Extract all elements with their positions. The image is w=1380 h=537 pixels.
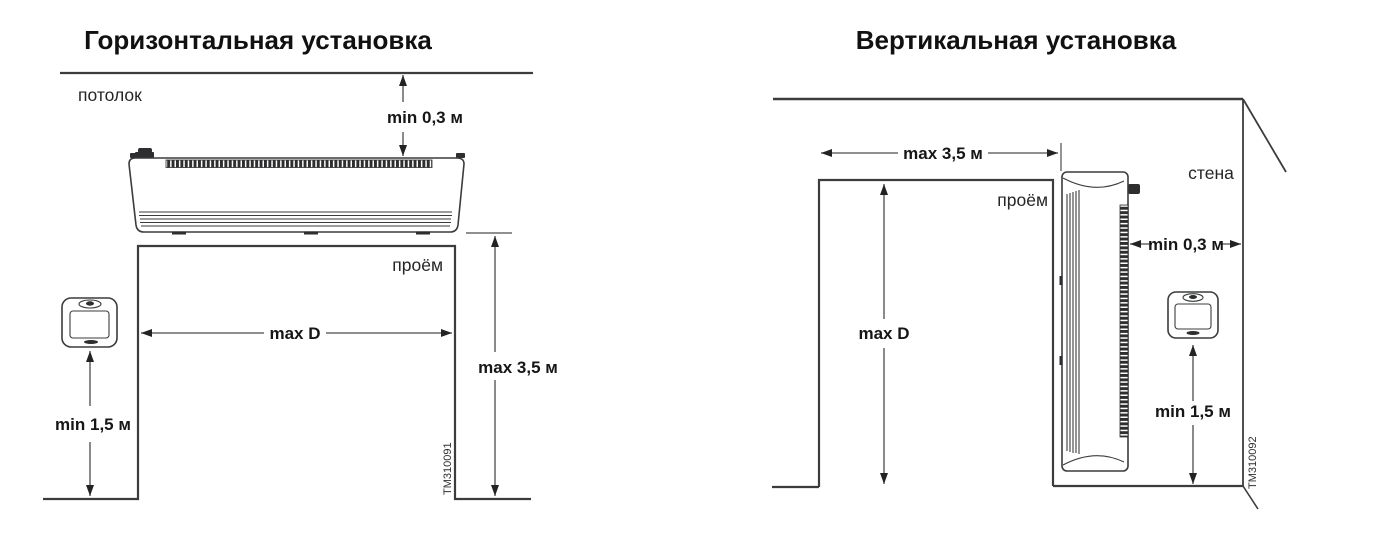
unit-foot (304, 232, 318, 235)
installation-diagram-page: Горизонтальная установка потолок min 0,3… (0, 0, 1380, 537)
drawing-code: TM310092 (1247, 436, 1259, 489)
unit-foot (1060, 356, 1063, 365)
dim-installation-height-label: max 3,5 м (478, 358, 558, 377)
dim-opening-height: max D (858, 184, 909, 484)
wall-label: стена (1188, 163, 1234, 183)
wall-corner-diagonal-top (1243, 99, 1286, 172)
right-diagram-title: Вертикальная установка (856, 25, 1177, 55)
opening-label: проём (392, 255, 443, 275)
diagram-canvas: Горизонтальная установка потолок min 0,3… (0, 0, 1380, 537)
cable-gland-base (135, 152, 154, 158)
vertical-installation-diagram: Вертикальная установка стена проём max 3… (772, 25, 1286, 509)
dim-opening-width-label: max 3,5 м (903, 144, 983, 163)
dim-opening-height-label: max D (858, 324, 909, 343)
dim-thermostat-height: min 1,5 м (55, 351, 131, 496)
unit-body (129, 158, 464, 232)
dim-wall-clearance: min 0,3 м (1130, 235, 1241, 254)
thermostat (62, 298, 117, 347)
dim-ceiling-clearance-label: min 0,3 м (387, 108, 463, 127)
air-curtain-unit-horizontal (129, 148, 465, 235)
intake-grille (1120, 205, 1128, 437)
dim-wall-clearance-label: min 0,3 м (1148, 235, 1224, 254)
thermostat-bottom-notch (84, 340, 98, 344)
horizontal-installation-diagram: Горизонтальная установка потолок min 0,3… (43, 25, 558, 499)
wall-opening-outline (43, 246, 531, 499)
dim-installation-height: max 3,5 м (466, 233, 558, 496)
cable-gland-icon (1128, 184, 1140, 194)
thermostat-bottom-notch (1187, 331, 1200, 335)
unit-body (1062, 172, 1128, 471)
unit-foot (172, 232, 186, 235)
thermostat-dial-knob (1189, 295, 1197, 299)
opening-label: проём (997, 190, 1048, 210)
dim-thermostat-height: min 1,5 м (1155, 345, 1231, 484)
unit-foot (1060, 276, 1063, 285)
air-curtain-unit-vertical (1060, 172, 1141, 471)
thermostat (1168, 292, 1218, 338)
dim-ceiling-clearance: min 0,3 м (387, 75, 463, 156)
dim-opening-width: max D (141, 324, 452, 343)
drawing-code: TM310091 (442, 442, 454, 495)
left-diagram-title: Горизонтальная установка (84, 25, 432, 55)
dim-thermostat-height-label: min 1,5 м (1155, 402, 1231, 421)
dim-opening-width-label: max D (269, 324, 320, 343)
intake-grille (166, 160, 432, 168)
unit-foot (416, 232, 430, 235)
ceiling-label: потолок (78, 85, 142, 105)
thermostat-dial-knob (86, 301, 94, 305)
dim-opening-width: max 3,5 м (821, 143, 1061, 171)
wall-opening-outline (819, 180, 1053, 487)
dim-thermostat-height-label: min 1,5 м (55, 415, 131, 434)
